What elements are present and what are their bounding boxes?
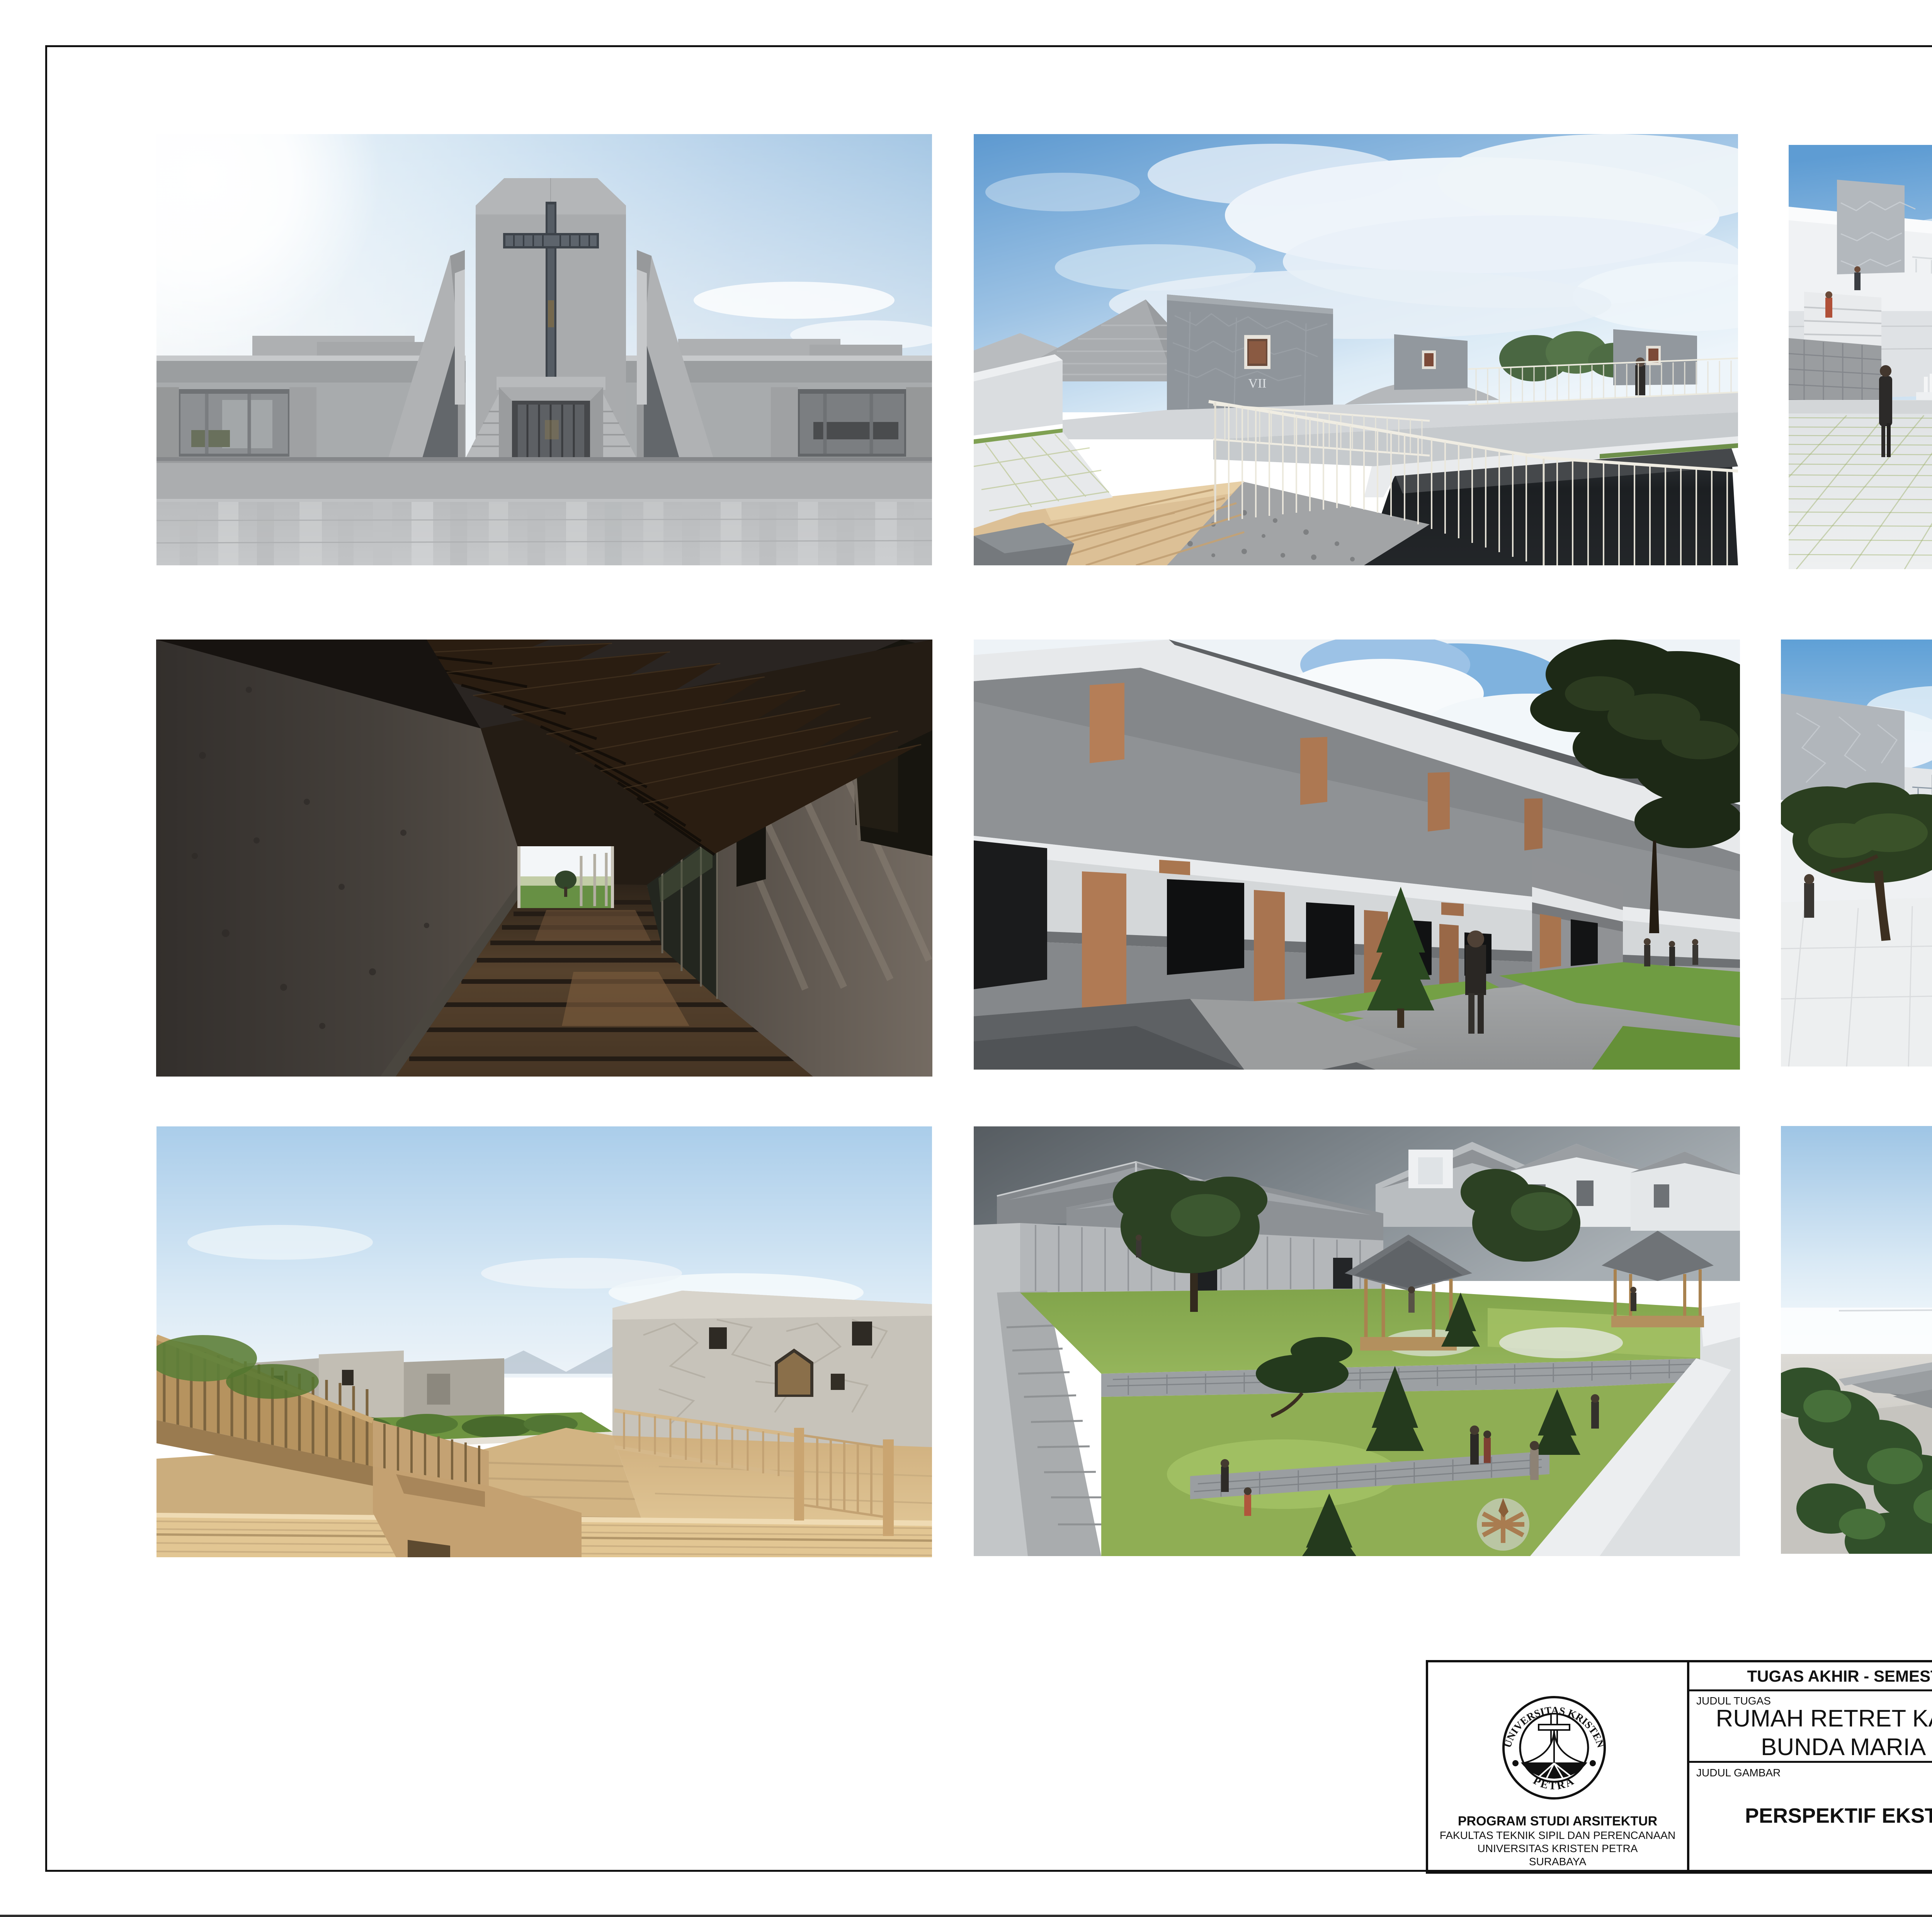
svg-text:VII: VII	[1248, 376, 1266, 391]
